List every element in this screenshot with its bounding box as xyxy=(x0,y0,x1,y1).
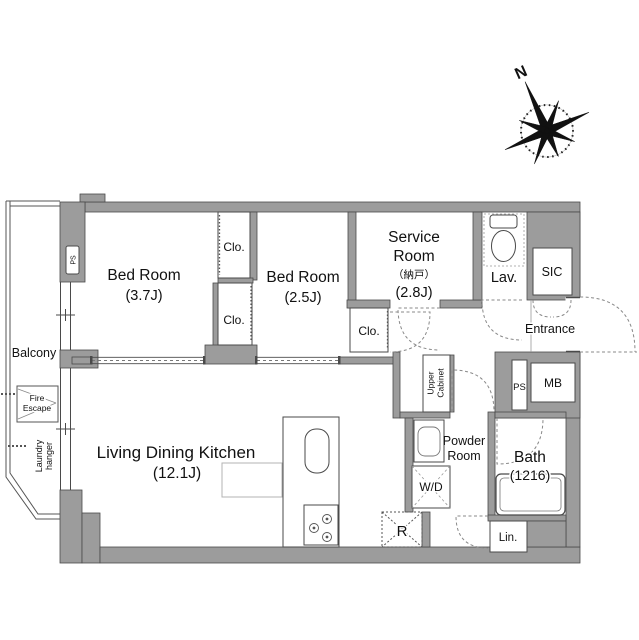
wall-bottom-left-block-b xyxy=(82,513,100,563)
ldk-size: (12.1J) xyxy=(153,465,201,482)
service-room-name-1: Service xyxy=(388,229,440,246)
upper-cabinet-label: Upper Cabinet xyxy=(426,368,446,398)
upper-cabinet-line-2: Cabinet xyxy=(436,368,446,398)
entrance-door-arc xyxy=(580,297,635,352)
laundry-hanger-line-2: hanger xyxy=(44,442,54,470)
bedroom-a-size: (3.7J) xyxy=(125,288,162,304)
compass: N xyxy=(476,47,601,176)
partition-jamb-2 xyxy=(203,356,206,365)
wall-service-lav xyxy=(473,212,482,300)
wall-powder-stub xyxy=(422,512,430,547)
lav-label: Lav. xyxy=(491,270,517,286)
wall-service-south-east xyxy=(440,300,482,308)
fire-escape-label-1: Fire xyxy=(30,393,45,403)
powder-room-name-1: Powder xyxy=(443,434,485,448)
stove-burner-1-dot xyxy=(326,518,329,521)
bath-name: Bath xyxy=(514,449,546,466)
wall-closet-south xyxy=(205,345,257,364)
ps-wall-marker-label: PS xyxy=(71,255,78,265)
pipe-space-label: PS xyxy=(513,382,526,393)
floor-plan-canvas: Bed Room (3.7J) Bed Room (2.5J) Service … xyxy=(0,0,639,640)
bedroom-a-floor xyxy=(72,212,213,357)
hall-door-arc xyxy=(452,370,494,412)
bedroom-b-name: Bed Room xyxy=(266,269,339,286)
wall-service-south-west xyxy=(347,300,390,308)
washbasin-bowl xyxy=(418,427,440,456)
wall-hall-ldk xyxy=(393,352,400,418)
service-closet-label: Clo. xyxy=(358,324,379,338)
service-room-kanji: （納戸） xyxy=(393,268,435,281)
wall-lin-east xyxy=(527,521,566,547)
entrance-label: Entrance xyxy=(525,322,575,336)
upper-cabinet-line-1: Upper xyxy=(426,371,436,394)
balcony-outer-rail xyxy=(6,201,60,519)
washbasin xyxy=(414,420,444,462)
powder-room-name-2: Room xyxy=(447,449,480,463)
closet-top-label: Clo. xyxy=(223,240,244,254)
stove-burner-3-dot xyxy=(326,536,329,539)
sic-label: SIC xyxy=(542,265,563,279)
toilet-bowl xyxy=(492,231,516,262)
wall-divider-seg-a xyxy=(72,357,92,364)
service-room-size: (2.8J) xyxy=(395,285,432,301)
partition-jamb-4 xyxy=(338,356,341,365)
floor-plan: Bed Room (3.7J) Bed Room (2.5J) Service … xyxy=(0,0,639,640)
balcony-label: Balcony xyxy=(12,346,57,360)
wall-top-left-tab xyxy=(80,194,105,202)
wall-bath-south xyxy=(488,515,566,521)
toilet-tank xyxy=(490,215,517,228)
wall-powder-north xyxy=(400,412,450,418)
bath-size: (1216) xyxy=(510,467,550,483)
balcony xyxy=(1,201,60,519)
stove-burner-2-dot xyxy=(313,527,316,530)
closet-bottom-label: Clo. xyxy=(223,313,244,327)
compass-north-label: N xyxy=(512,63,529,83)
kitchen-sink xyxy=(305,429,329,473)
refrigerator-label: R xyxy=(397,523,408,540)
wall-bath-west xyxy=(488,412,495,518)
bedroom-b-size: (2.5J) xyxy=(284,290,321,306)
kitchen xyxy=(283,417,339,547)
fire-escape-label-2: Escape xyxy=(23,403,52,413)
service-room-name-2: Room xyxy=(393,248,434,265)
wall-closet-divider xyxy=(218,278,253,283)
wall-bath-north xyxy=(495,412,566,418)
washer-dryer-label: W/D xyxy=(419,480,443,494)
linen-label: Lin. xyxy=(499,532,518,544)
compass-needles xyxy=(483,63,600,175)
kitchen-stove xyxy=(304,505,338,545)
bedroom-a-name: Bed Room xyxy=(107,267,180,284)
wall-top xyxy=(85,202,580,212)
wall-bottom-left-block-a xyxy=(60,490,82,563)
laundry-hanger-label: Laundry hanger xyxy=(34,439,54,472)
meter-box-label: MB xyxy=(544,376,562,390)
wall-bedroomb-service xyxy=(348,212,356,308)
partition-jamb-3 xyxy=(255,356,258,365)
wall-divider-seg-c xyxy=(340,357,398,364)
partition-jamb-1 xyxy=(90,356,93,365)
laundry-hanger-line-1: Laundry xyxy=(34,439,44,472)
ps-wall-marker-text: PS xyxy=(71,255,78,265)
ldk-name: Living Dining Kitchen xyxy=(97,443,256,462)
wall-closet-east xyxy=(250,212,257,280)
